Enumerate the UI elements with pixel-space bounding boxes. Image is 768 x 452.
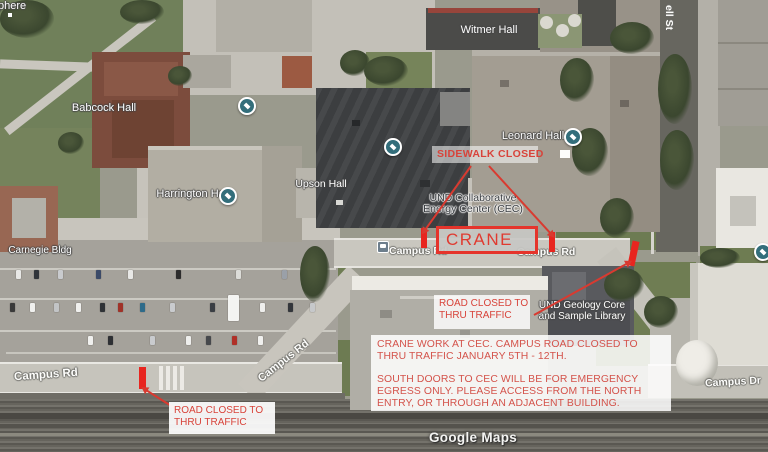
parked-car bbox=[118, 303, 123, 312]
label-cornell-st: ell St bbox=[663, 5, 675, 30]
google-maps-watermark[interactable]: Google Maps bbox=[429, 430, 517, 445]
tree bbox=[168, 66, 192, 86]
tree bbox=[58, 132, 84, 154]
building-right-top bbox=[718, 0, 768, 126]
parked-car bbox=[16, 270, 21, 279]
crosswalk bbox=[173, 366, 177, 390]
tree bbox=[610, 22, 654, 54]
rooftop-unit bbox=[440, 92, 470, 126]
crane-annotation-box: CRANE bbox=[436, 226, 538, 254]
parked-car bbox=[150, 336, 155, 345]
label-upson-hall: Upson Hall bbox=[295, 178, 346, 190]
road-closed-left-box: ROAD CLOSED TO THRU TRAFFIC bbox=[169, 402, 275, 434]
rooftop-unit bbox=[560, 150, 570, 158]
tree bbox=[700, 248, 740, 268]
parked-car bbox=[288, 303, 293, 312]
rooftop-unit bbox=[380, 310, 392, 318]
parked-car bbox=[310, 303, 315, 312]
parked-car bbox=[210, 303, 215, 312]
parked-car bbox=[100, 303, 105, 312]
parked-car bbox=[260, 303, 265, 312]
parked-car bbox=[206, 336, 211, 345]
crosswalk bbox=[159, 366, 163, 390]
tree bbox=[660, 130, 694, 190]
parked-car bbox=[34, 270, 39, 279]
crosswalk bbox=[166, 366, 170, 390]
rooftop-unit bbox=[336, 200, 343, 205]
road-closed-left-line1: ROAD CLOSED TO bbox=[174, 405, 270, 417]
garden-path-circle bbox=[568, 14, 581, 27]
parked-car bbox=[232, 336, 237, 345]
parked-car bbox=[54, 303, 59, 312]
railroad-track bbox=[0, 433, 768, 436]
road-closed-mid-box: ROAD CLOSED TO THRU TRAFFIC bbox=[434, 295, 530, 329]
parked-car bbox=[176, 270, 181, 279]
crosswalk bbox=[180, 366, 184, 390]
parked-car bbox=[96, 270, 101, 279]
parking-line bbox=[0, 298, 336, 300]
sidewalk-closed-label: SIDEWALK CLOSED bbox=[437, 148, 544, 160]
parked-bus bbox=[228, 295, 239, 321]
parked-car bbox=[88, 336, 93, 345]
road-closed-mid-line1: ROAD CLOSED TO bbox=[439, 298, 525, 310]
map-pin-mini bbox=[8, 13, 12, 17]
parked-car bbox=[108, 336, 113, 345]
school-poi-icon[interactable] bbox=[564, 128, 582, 146]
road-closed-mid-line2: THRU TRAFFIC bbox=[439, 310, 525, 322]
tree bbox=[120, 0, 164, 24]
building bbox=[216, 0, 312, 52]
railroad-track bbox=[0, 424, 768, 428]
parked-car bbox=[128, 270, 133, 279]
parked-car bbox=[170, 303, 175, 312]
label-partial-top-left: phere bbox=[0, 0, 26, 12]
label-geology-line2: and Sample Library bbox=[539, 311, 626, 322]
building-witmer-brick-edge bbox=[428, 8, 538, 13]
rooftop-unit bbox=[620, 100, 629, 107]
railroad-track bbox=[0, 413, 768, 419]
cornell-st-road bbox=[656, 0, 698, 252]
school-poi-icon[interactable] bbox=[754, 243, 768, 261]
tree bbox=[560, 58, 594, 102]
school-poi-icon[interactable] bbox=[384, 138, 402, 156]
sidewalk bbox=[334, 266, 564, 268]
roof-divider bbox=[718, 42, 768, 44]
label-babcock-hall: Babcock Hall bbox=[72, 102, 136, 114]
rooftop-unit bbox=[352, 120, 360, 126]
label-carnegie-bldg: Carnegie Bldg bbox=[8, 245, 71, 256]
school-poi-icon[interactable] bbox=[238, 97, 256, 115]
parked-car bbox=[58, 270, 63, 279]
parked-car bbox=[10, 303, 15, 312]
school-poi-icon[interactable] bbox=[219, 187, 237, 205]
bus-stop-icon[interactable] bbox=[377, 241, 389, 253]
rooftop-unit bbox=[420, 180, 430, 187]
tree bbox=[658, 54, 692, 124]
satellite-map: phere Witmer Hall Babcock Hall Harringto… bbox=[0, 0, 768, 452]
notice-paragraph-2: SOUTH DOORS TO CEC WILL BE FOR EMERGENCY… bbox=[377, 374, 665, 410]
parked-car bbox=[76, 303, 81, 312]
building-babcock-roof bbox=[104, 62, 178, 96]
label-leonard-hall: Leonard Hall bbox=[502, 130, 564, 142]
parked-car bbox=[186, 336, 191, 345]
garden-path-circle bbox=[556, 24, 569, 37]
road-closed-left-line2: THRU TRAFFIC bbox=[174, 417, 270, 429]
label-witmer-hall: Witmer Hall bbox=[461, 24, 518, 36]
tree bbox=[364, 56, 408, 86]
notice-paragraph-1: CRANE WORK AT CEC. CAMPUS ROAD CLOSED TO… bbox=[377, 339, 665, 363]
parked-car bbox=[236, 270, 241, 279]
tree bbox=[600, 198, 634, 238]
parked-car bbox=[30, 303, 35, 312]
parked-car bbox=[258, 336, 263, 345]
building-carnegie-roof bbox=[12, 198, 46, 238]
tree bbox=[300, 246, 330, 302]
rooftop-unit bbox=[500, 80, 509, 87]
tree bbox=[644, 296, 678, 328]
parked-car bbox=[140, 303, 145, 312]
roof-divider bbox=[718, 88, 768, 90]
garden-path-circle bbox=[540, 16, 553, 29]
parked-car bbox=[282, 270, 287, 279]
crane-notice-box: CRANE WORK AT CEC. CAMPUS ROAD CLOSED TO… bbox=[371, 335, 671, 411]
building bbox=[282, 56, 312, 88]
rooftop-unit bbox=[730, 196, 756, 226]
